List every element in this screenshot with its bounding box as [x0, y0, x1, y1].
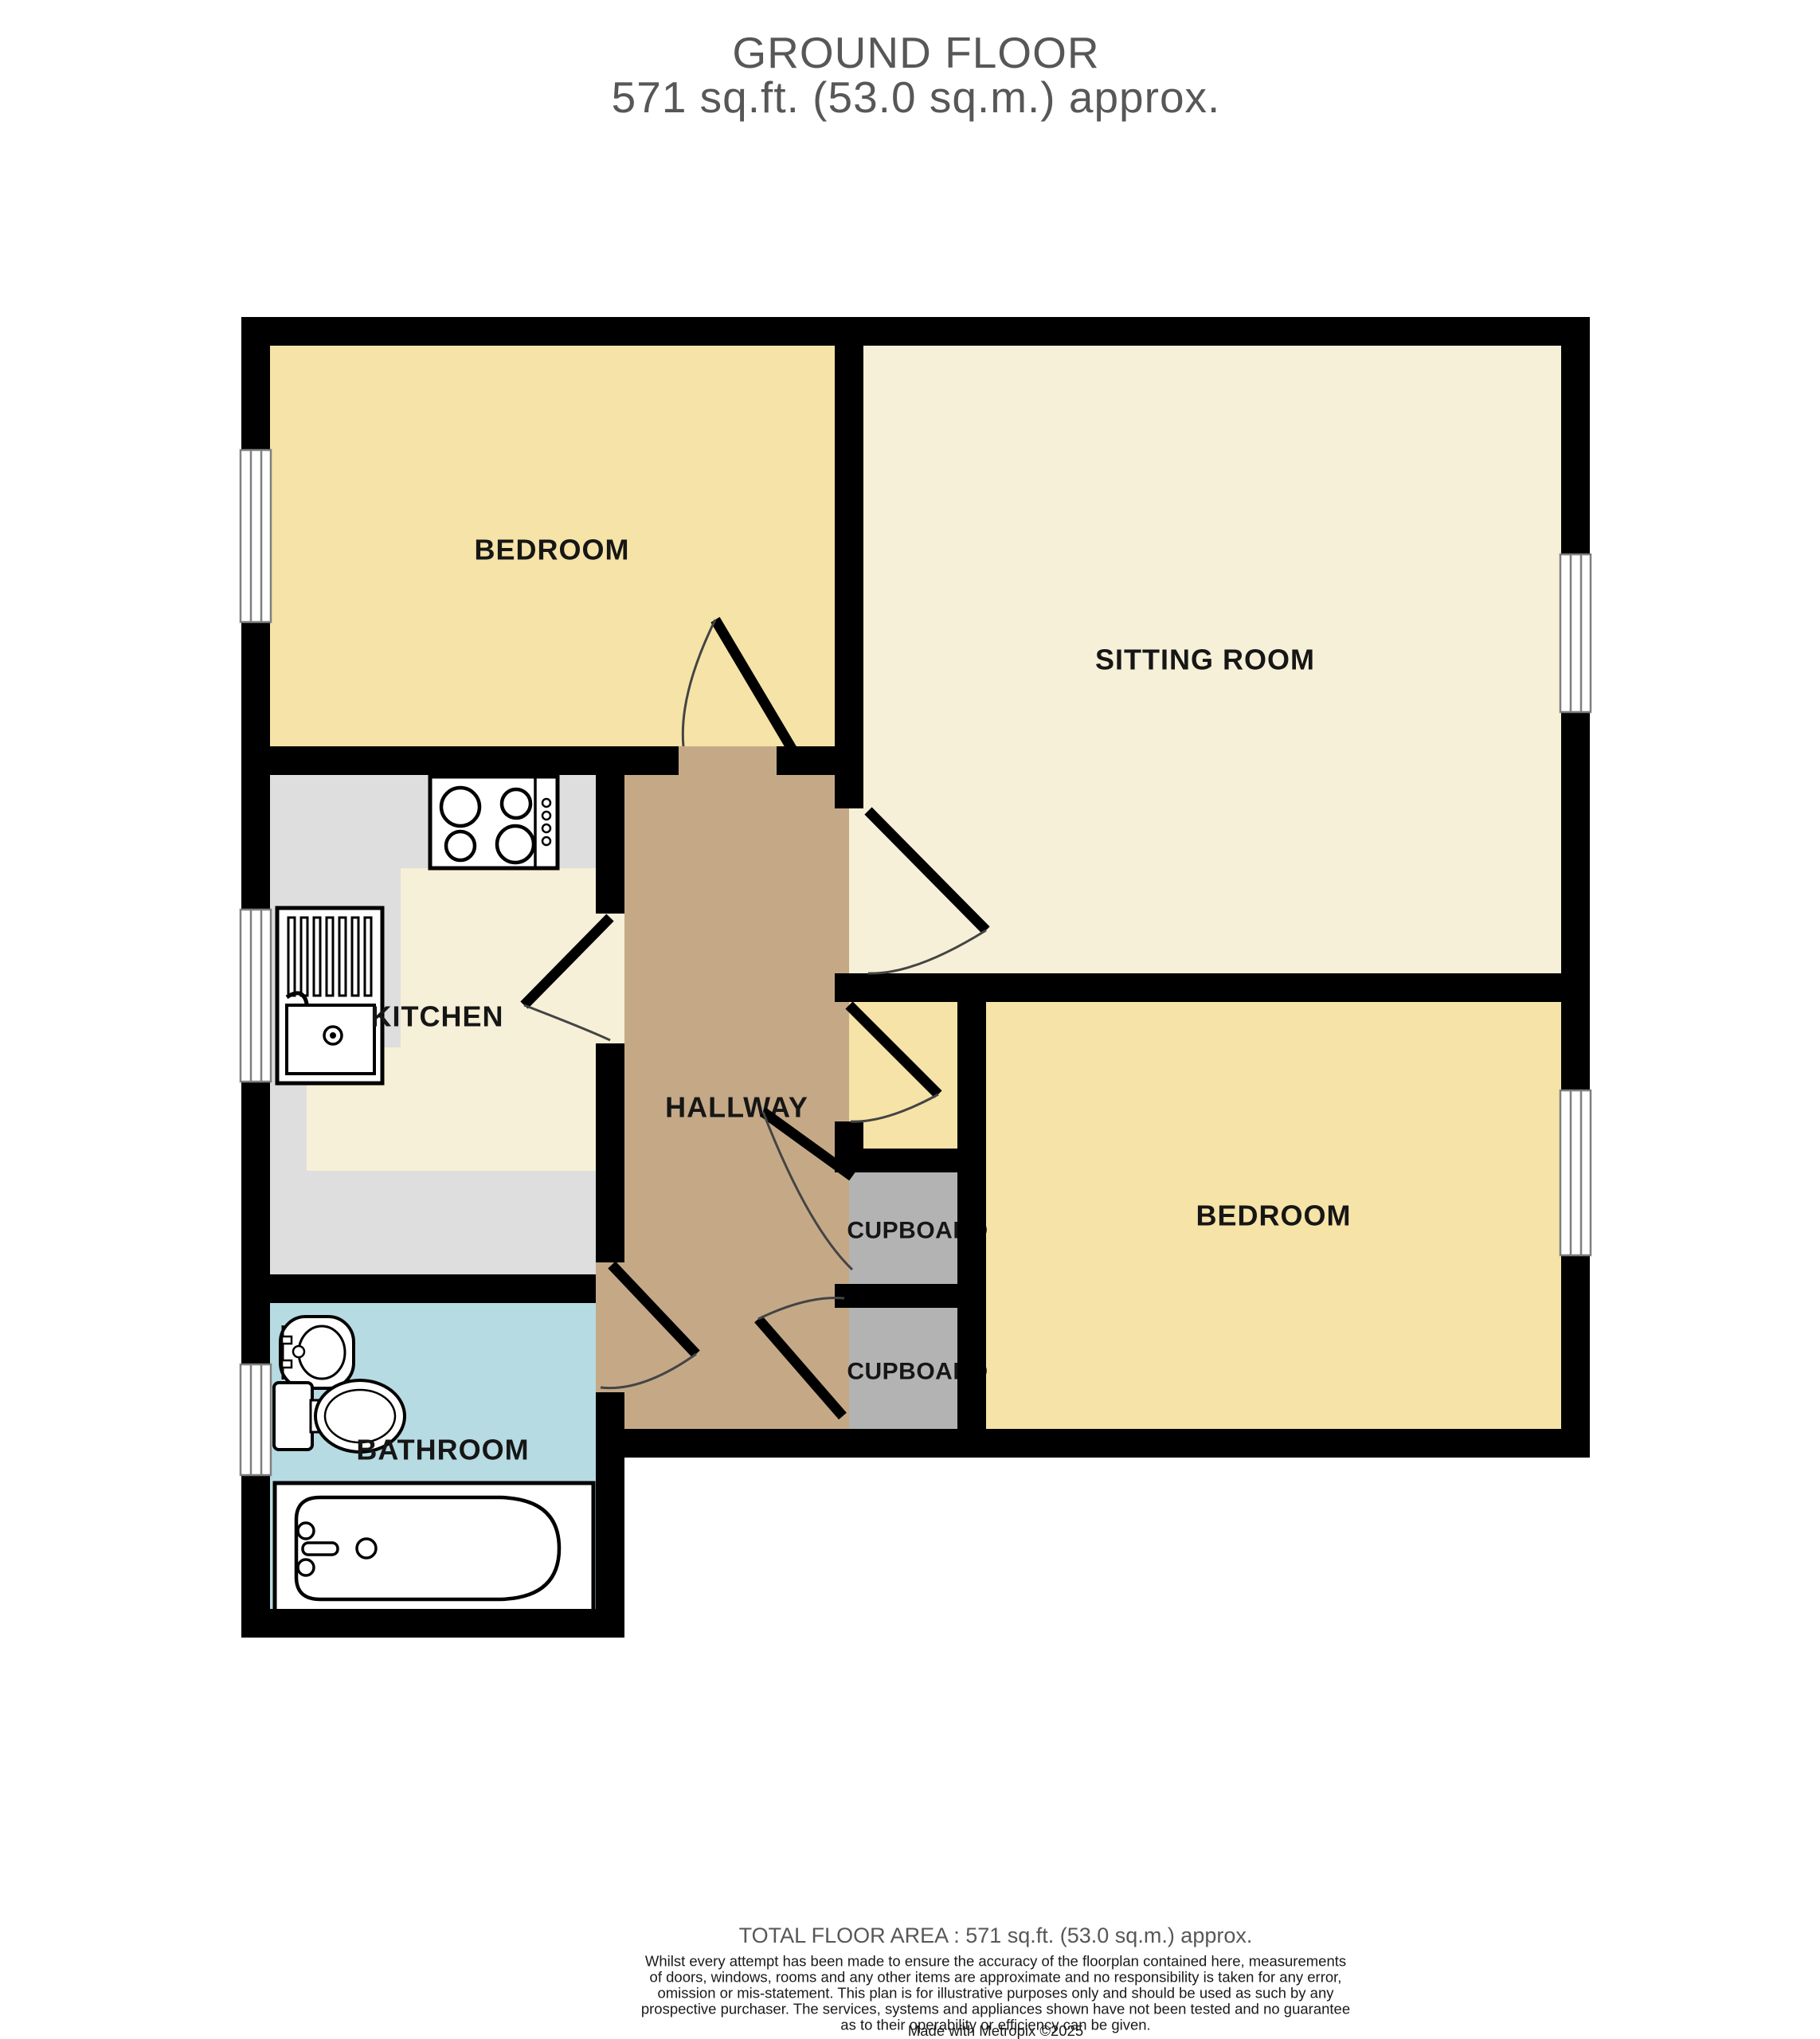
sink-drainer-bar: [365, 918, 371, 996]
hob-burner: [441, 788, 479, 826]
footer-block: TOTAL FLOOR AREA : 571 sq.ft. (53.0 sq.m…: [641, 1924, 1350, 2039]
sink-drainer-bar: [288, 918, 295, 996]
hob: [430, 777, 558, 868]
disclaimer-line: of doors, windows, rooms and any other i…: [650, 1969, 1342, 1986]
label-kitchen: KITCHEN: [371, 1000, 504, 1033]
wall-kitchen-right-lower: [596, 1043, 624, 1262]
hob-burner: [497, 826, 534, 863]
wall-exterior-right: [1561, 317, 1590, 1458]
title-line-2: 571 sq.ft. (53.0 sq.m.) approx.: [612, 72, 1221, 122]
toilet-cistern: [274, 1383, 312, 1450]
label-hallway: HALLWAY: [665, 1091, 808, 1124]
wall-bedroom2-door-stub: [835, 1121, 863, 1149]
label-bathroom: BATHROOM: [356, 1434, 529, 1466]
wall-bedroom1-bottom: [241, 746, 679, 775]
window-kitchen-left: [241, 910, 271, 1082]
room-hallway-fill: [624, 746, 849, 1429]
hob-knob: [542, 812, 550, 820]
wall-bedroom1-sitting-divider: [835, 346, 863, 808]
window-glass: [241, 1364, 271, 1475]
label-bedroom1: BEDROOM: [475, 534, 630, 566]
window-glass: [241, 450, 271, 622]
sink-plughole-dot: [331, 1033, 336, 1039]
basin-tap-handle: [282, 1360, 292, 1368]
sink-drainer-bar: [301, 918, 307, 996]
sink-drainer-bar: [314, 918, 320, 996]
wall-sitting-bedroom2-divider: [835, 973, 1561, 1002]
basin-tap-handle: [282, 1337, 292, 1344]
wall-kitchen-right-upper: [596, 775, 624, 914]
bathroom-basin: [280, 1317, 354, 1388]
window-sitting-right: [1560, 554, 1591, 712]
basin-bowl: [299, 1326, 345, 1379]
wall-bathroom-bottom: [241, 1609, 624, 1638]
bathroom-door-opening-fill: [596, 1262, 624, 1392]
hob-knob: [542, 799, 550, 807]
bath-tap: [298, 1523, 314, 1539]
window-glass: [241, 910, 271, 1082]
footer-total-area: TOTAL FLOOR AREA : 571 sq.ft. (53.0 sq.m…: [739, 1924, 1253, 1947]
basin-tap: [293, 1346, 304, 1357]
title-line-1: GROUND FLOOR: [732, 28, 1099, 77]
bath: [275, 1483, 593, 1614]
wall-bathroom-right: [596, 1392, 624, 1638]
kitchen-sink: [277, 908, 382, 1083]
wall-exterior-bottom: [596, 1429, 1590, 1458]
hob-knob: [542, 837, 550, 845]
title-block: GROUND FLOOR 571 sq.ft. (53.0 sq.m.) app…: [612, 28, 1221, 122]
window-bathroom-left: [241, 1364, 271, 1475]
bath-spout: [303, 1543, 338, 1555]
wall-bathroom-top: [241, 1274, 596, 1303]
wall-cupboard-divider: [835, 1284, 986, 1308]
sink-drainer-bar: [327, 918, 333, 996]
window-bedroom1-left: [241, 450, 271, 622]
sink-drainer-bar: [352, 918, 358, 996]
window-bedroom2-right: [1560, 1090, 1591, 1255]
bath-tap: [298, 1560, 314, 1575]
metropix-credit: Made with Metropix ©2025: [908, 2022, 1083, 2039]
window-glass: [1560, 554, 1591, 712]
hob-burner: [502, 789, 530, 818]
window-glass: [1560, 1090, 1591, 1255]
disclaimer-line: omission or mis-statement. This plan is …: [657, 1985, 1334, 2002]
floorplan-svg: GROUND FLOOR 571 sq.ft. (53.0 sq.m.) app…: [0, 0, 1820, 2039]
sink-drainer-bar: [339, 918, 346, 996]
wall-bedroom2-left: [957, 1002, 986, 1429]
wall-cupboard1-top: [835, 1149, 986, 1172]
label-sitting-room: SITTING ROOM: [1095, 644, 1315, 676]
floorplan-page: GROUND FLOOR 571 sq.ft. (53.0 sq.m.) app…: [0, 0, 1820, 2039]
hob-knob: [542, 824, 550, 832]
bath-plughole: [357, 1539, 376, 1558]
wall-exterior-top: [241, 317, 1590, 346]
hob-burner: [446, 832, 475, 860]
disclaimer-line: Whilst every attempt has been made to en…: [645, 1953, 1346, 1970]
label-bedroom2: BEDROOM: [1196, 1200, 1352, 1232]
footer-disclaimer: Whilst every attempt has been made to en…: [641, 1953, 1350, 2039]
disclaimer-line: prospective purchaser. The services, sys…: [641, 2001, 1350, 2017]
